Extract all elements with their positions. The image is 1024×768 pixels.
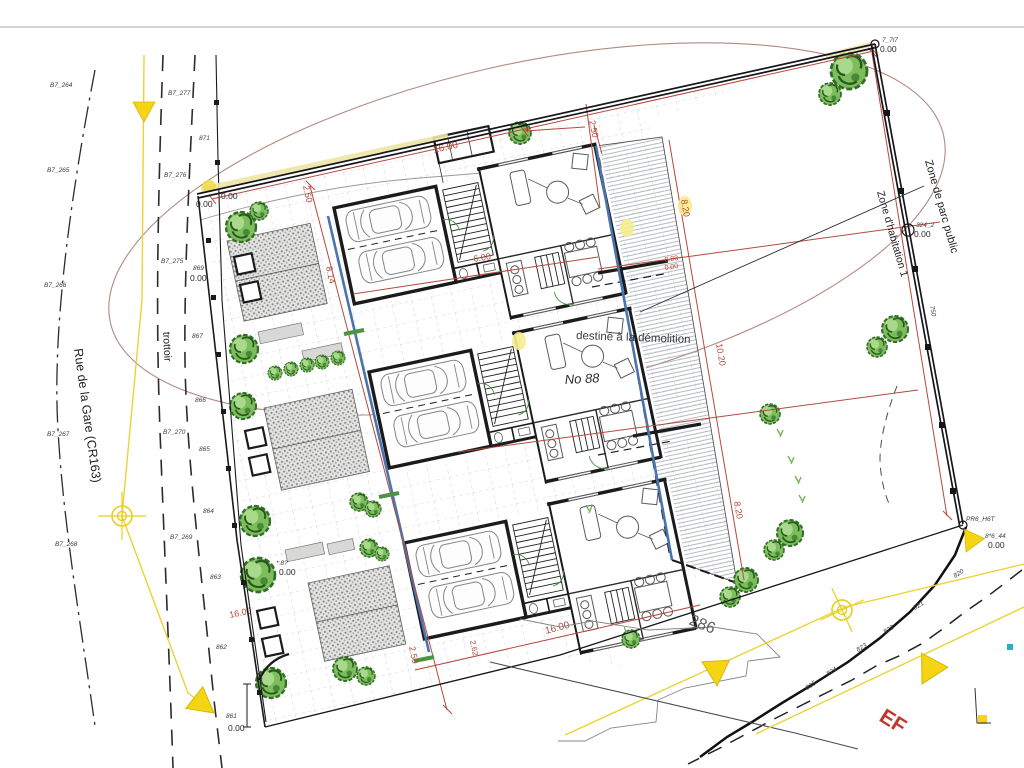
svg-text:trottoir: trottoir — [160, 332, 174, 363]
svg-text:B7_269: B7_269 — [170, 534, 193, 541]
svg-text:B7_275: B7_275 — [161, 258, 184, 265]
svg-text:0.00: 0.00 — [228, 723, 245, 733]
svg-text:869: 869 — [193, 265, 204, 272]
svg-text:B7_276: B7_276 — [164, 172, 187, 179]
svg-text:B7_268: B7_268 — [55, 541, 78, 548]
svg-text:0.00: 0.00 — [190, 273, 207, 283]
svg-text:0.00: 0.00 — [221, 191, 238, 201]
svg-text:867: 867 — [192, 333, 203, 340]
svg-text:861: 861 — [226, 713, 237, 720]
svg-text:0.00: 0.00 — [196, 199, 213, 209]
svg-text:8*6_44: 8*6_44 — [985, 533, 1006, 540]
svg-text:B7_266: B7_266 — [44, 282, 67, 289]
svg-text:865: 865 — [199, 446, 210, 453]
svg-text:B7_264: B7_264 — [50, 82, 73, 89]
svg-text:0.00: 0.00 — [988, 540, 1005, 550]
svg-text:7_7l7: 7_7l7 — [882, 37, 898, 44]
svg-text:866: 866 — [195, 397, 206, 404]
svg-text:*:8?: *:8? — [276, 560, 288, 567]
svg-text:862: 862 — [216, 644, 227, 651]
svg-text:324_2: 324_2 — [916, 222, 934, 229]
svg-text:0.00: 0.00 — [914, 229, 931, 239]
svg-text:871: 871 — [199, 135, 210, 142]
svg-text:PR6_H6T: PR6_H6T — [966, 516, 996, 523]
svg-text:863: 863 — [210, 574, 221, 581]
svg-text:B7_277: B7_277 — [168, 90, 191, 97]
svg-text:0.00: 0.00 — [880, 44, 897, 54]
svg-text:B7_267: B7_267 — [47, 431, 70, 438]
svg-text:No 88: No 88 — [564, 370, 600, 387]
svg-text:B7_270: B7_270 — [163, 429, 186, 436]
svg-text:B7_265: B7_265 — [47, 167, 70, 174]
svg-text:0.00: 0.00 — [279, 567, 296, 577]
svg-text:864: 864 — [203, 508, 214, 515]
